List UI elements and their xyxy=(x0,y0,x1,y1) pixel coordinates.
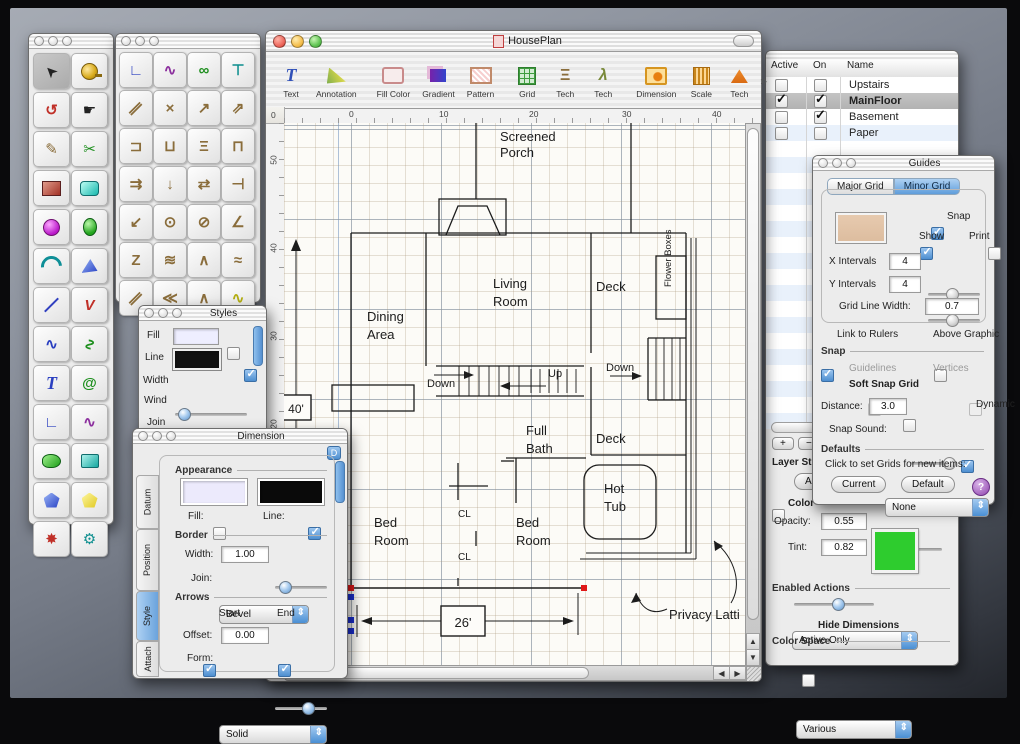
tech-tool-6[interactable]: × xyxy=(153,90,187,126)
palette-collapse-icon[interactable] xyxy=(135,36,145,46)
dimension-title: Dimension xyxy=(180,431,342,442)
styles-width-slider[interactable] xyxy=(175,413,247,416)
horizontal-scrollbar[interactable]: ◀ ▶ xyxy=(284,665,747,681)
tech-tool-5[interactable]: ∥ xyxy=(119,90,153,126)
dimension-width-slider[interactable] xyxy=(275,586,327,589)
tech-tool-12-icon: ⊓ xyxy=(232,139,244,154)
guides-title-bar[interactable]: Guides xyxy=(813,156,994,171)
bezier-tool[interactable]: ∿ xyxy=(71,404,108,440)
plus-icon: + xyxy=(780,438,786,449)
appearance-label: Appearance xyxy=(175,465,232,476)
dimension-scrollbar-thumb[interactable] xyxy=(335,461,345,503)
label-flower-boxes: Flower Boxes xyxy=(663,229,674,287)
defaults-hint: Click to set Grids for new items: xyxy=(825,459,966,470)
tech-tool-17-icon: ↙ xyxy=(130,215,143,230)
horizontal-ruler[interactable]: 0 10 20 30 40 xyxy=(284,107,761,124)
circle-icon xyxy=(43,219,60,236)
current-button-label: Current xyxy=(842,479,875,490)
rounded-rectangle-tool[interactable] xyxy=(71,170,108,206)
layers-col-on[interactable]: On xyxy=(813,60,847,77)
dimension-join-label: Join: xyxy=(191,573,212,584)
styles-wind-label: Wind xyxy=(144,395,167,406)
layer-row-paper[interactable]: Paper xyxy=(766,125,958,141)
tint-field[interactable]: 0.82 xyxy=(821,539,867,556)
tab-position[interactable]: Position xyxy=(136,529,159,591)
toolbar-toggle-button[interactable] xyxy=(733,35,754,47)
tape-measure-icon xyxy=(81,63,98,80)
link-to-rulers-label: Link to Rulers xyxy=(837,329,898,340)
palette-close-icon[interactable] xyxy=(121,36,131,46)
x-intervals-label: X Intervals xyxy=(829,256,876,267)
tint-value: 0.82 xyxy=(834,542,853,553)
tape-measure-tool[interactable] xyxy=(71,53,108,89)
layer-row-upstairs[interactable]: Upstairs xyxy=(766,77,958,93)
border-label: Border xyxy=(175,530,208,541)
appearance-section: Appearance xyxy=(175,465,327,476)
snap-sound-label: Snap Sound: xyxy=(829,424,887,435)
offset-field[interactable]: 0.00 xyxy=(221,627,269,644)
print-checkbox[interactable] xyxy=(988,247,1001,260)
rectangle-tool[interactable] xyxy=(33,170,70,206)
label-hot-tub-2: Tub xyxy=(604,499,626,514)
palette-zoom-icon[interactable] xyxy=(166,431,176,441)
rectangle-icon xyxy=(42,181,61,196)
label-closet-2: CL xyxy=(458,552,471,563)
print-label: Print xyxy=(969,231,990,242)
tech-tool-18-icon: ⊙ xyxy=(164,215,177,230)
label-deck-lower: Deck xyxy=(596,431,626,446)
toolbar-label: Tech xyxy=(556,89,574,99)
scroll-down-icon[interactable]: ▼ xyxy=(746,649,760,666)
drawing-tools-title-bar[interactable] xyxy=(29,34,113,49)
tech-tool-14-icon: ↓ xyxy=(166,177,174,192)
y-intervals-slider[interactable] xyxy=(928,319,980,322)
grid-color-swatch[interactable] xyxy=(835,212,887,244)
dimension-width-label: Width: xyxy=(185,549,213,560)
above-graphic-label: Above Graphic xyxy=(933,329,999,340)
palette-zoom-icon[interactable] xyxy=(846,158,856,168)
label-down-right: Down xyxy=(606,362,634,374)
dimension-icon xyxy=(645,67,667,85)
resize-grip[interactable] xyxy=(747,667,761,681)
toolbar-label: Scale xyxy=(691,89,712,99)
ruler-tick-label: 40 xyxy=(269,243,279,252)
palette-collapse-icon[interactable] xyxy=(158,308,168,318)
y-intervals-value: 4 xyxy=(902,279,908,290)
layer-active-checkbox[interactable] xyxy=(775,111,788,124)
zoom-button[interactable] xyxy=(309,35,322,48)
pentagon-icon xyxy=(44,493,60,508)
distance-value: 3.0 xyxy=(881,401,895,412)
closed-curve-icon xyxy=(42,454,61,468)
palette-close-icon[interactable] xyxy=(818,158,828,168)
color-space-label: Color Space xyxy=(772,636,830,647)
layer-on-checkbox[interactable] xyxy=(814,111,827,124)
x-intervals-field[interactable]: 4 xyxy=(889,253,921,270)
y-intervals-field[interactable]: 4 xyxy=(889,276,921,293)
tech-tool-19[interactable]: ⊘ xyxy=(187,204,221,240)
tech-tool-6-icon: × xyxy=(166,101,175,116)
line-tool[interactable] xyxy=(33,287,70,323)
tech-tool-4-icon: ⊤ xyxy=(231,63,244,78)
styles-width-label: Width xyxy=(143,375,169,386)
color-space-dropdown[interactable]: Various xyxy=(796,720,912,739)
offset-value: 0.00 xyxy=(235,630,254,641)
palette-collapse-icon[interactable] xyxy=(48,36,58,46)
opacity-value: 0.55 xyxy=(834,516,853,527)
tech-icon: Ξ xyxy=(560,67,570,85)
question-icon: ? xyxy=(978,482,984,493)
closed-path-tool[interactable] xyxy=(71,443,108,479)
palette-collapse-icon[interactable] xyxy=(832,158,842,168)
toolbar-item-text[interactable]: T Text xyxy=(272,54,310,108)
toolbar-label: Tech xyxy=(594,89,612,99)
ruler-tick-label: 30 xyxy=(622,109,631,119)
show-label: Show xyxy=(919,231,944,242)
floor-plan: Screened Porch Living Room Deck Dining A… xyxy=(284,123,747,667)
styles-line-swatch[interactable] xyxy=(173,349,221,370)
pentagon-tool[interactable] xyxy=(33,482,70,518)
tech-tool-13[interactable]: ⇉ xyxy=(119,166,153,202)
tech-tool-1-icon: ∟ xyxy=(129,63,144,78)
soft-snap-label: Soft Snap Grid xyxy=(849,379,919,390)
ruler-tick-label: 50 xyxy=(269,155,279,164)
polygon-tool[interactable] xyxy=(71,482,108,518)
layer-name: Paper xyxy=(849,127,878,139)
snap-sound-dropdown[interactable]: None xyxy=(885,498,989,517)
vertical-scrollbar[interactable]: ▲ ▼ xyxy=(745,123,761,667)
tab-attach-label: Attach xyxy=(143,646,153,672)
tech-tool-23[interactable]: ∧ xyxy=(187,242,221,278)
gear-tool[interactable]: ⚙ xyxy=(71,521,108,557)
tab-style[interactable]: Style xyxy=(136,591,159,641)
tech-tool-22[interactable]: ≋ xyxy=(153,242,187,278)
ruler-tick-label: 10 xyxy=(439,109,448,119)
label-closet-1: CL xyxy=(458,509,471,520)
scroll-right-icon[interactable]: ▶ xyxy=(729,666,746,680)
tint-slider[interactable] xyxy=(794,603,874,606)
tech-tool-11-icon: Ξ xyxy=(199,139,209,154)
tab-datum[interactable]: Datum xyxy=(136,475,159,529)
tint-color-swatch[interactable] xyxy=(872,529,918,573)
polygon-icon xyxy=(82,493,98,508)
form-label: Form: xyxy=(187,653,213,664)
tech-tool-20[interactable]: ∠ xyxy=(221,204,255,240)
drawing-canvas[interactable]: Screened Porch Living Room Deck Dining A… xyxy=(284,123,747,667)
toolbar-item-tech-3[interactable]: Tech xyxy=(720,54,758,108)
toolbar-label: Annotation xyxy=(316,89,357,99)
tech-tool-24-icon: ≈ xyxy=(234,253,242,268)
label-privacy-lattice: Privacy Latti xyxy=(669,607,740,622)
tech-tool-22-icon: ≋ xyxy=(164,253,177,268)
add-layer-button[interactable]: + xyxy=(772,437,794,450)
grid-icon xyxy=(518,67,536,85)
toolbar-item-tech-1[interactable]: Ξ Tech xyxy=(546,54,584,108)
corner-path-tool[interactable]: ∟ xyxy=(33,404,70,440)
toolbar-label: Gradient xyxy=(422,89,455,99)
defaults-label: Defaults xyxy=(821,444,860,455)
grid-line-width-field[interactable]: 0.7 xyxy=(925,298,979,315)
offset-slider[interactable] xyxy=(275,707,327,710)
window-title-text: HousePlan xyxy=(508,35,562,47)
label-up: Up xyxy=(548,368,562,380)
styles-fill-swatch[interactable] xyxy=(173,328,219,345)
layer-active-checkbox[interactable] xyxy=(775,95,788,108)
arrow-start-checkbox[interactable] xyxy=(203,664,216,677)
tint-label: Tint: xyxy=(788,542,807,553)
tech-tools-palette: ∟ ∿ ∞ ⊤ ∥ × ↗ ⇗ ⊐ ⊔ Ξ ⊓ ⇉ ↓ ⇄ ⊣ ↙ ⊙ ⊘ ∠ … xyxy=(115,33,261,303)
tech-tool-9[interactable]: ⊐ xyxy=(119,128,153,164)
dimension-fill-swatch[interactable] xyxy=(181,479,247,505)
line-icon xyxy=(44,298,59,313)
document-icon xyxy=(493,35,504,48)
styles-fill-checkbox[interactable] xyxy=(227,347,240,360)
show-checkbox[interactable] xyxy=(920,247,933,260)
rotate-tool[interactable]: ↺ xyxy=(33,92,70,128)
styles-join-label: Join xyxy=(147,417,165,428)
grid-line-width-value: 0.7 xyxy=(945,301,959,312)
scroll-up-icon[interactable]: ▲ xyxy=(746,633,760,650)
link-to-rulers-checkbox[interactable] xyxy=(821,369,834,382)
tech-tool-16[interactable]: ⊣ xyxy=(221,166,255,202)
default-button[interactable]: Default xyxy=(901,476,955,493)
tech-tool-15[interactable]: ⇄ xyxy=(187,166,221,202)
window-title: HousePlan xyxy=(327,35,728,48)
toolbar-overflow-chevron[interactable]: » xyxy=(758,74,769,88)
tech-tool-10-icon: ⊔ xyxy=(164,139,176,154)
toolbar-label: Pattern xyxy=(467,89,494,99)
tech-tool-21-icon: Z xyxy=(131,253,140,268)
guides-palette: Guides Major Grid Minor Grid Snap Show P… xyxy=(812,155,995,505)
hide-dimensions-checkbox[interactable] xyxy=(802,674,815,687)
label-screened-porch: Screened xyxy=(500,129,556,144)
tech-tool-14[interactable]: ↓ xyxy=(153,166,187,202)
palette-close-icon[interactable] xyxy=(138,431,148,441)
label-bedroom-right: Bed xyxy=(516,515,539,530)
tech-tool-8[interactable]: ⇗ xyxy=(221,90,255,126)
drawing-tools-palette: ➤ ↺ ☛ ✎ ✂ V ∿ ∿ T @ ∟ ∿ ✸ ⚙ xyxy=(28,33,114,525)
text-tool[interactable]: T xyxy=(33,365,70,401)
toolbar-item-annotation[interactable]: Annotation xyxy=(310,54,363,108)
tech-tool-12[interactable]: ⊓ xyxy=(221,128,255,164)
desktop: ➤ ↺ ☛ ✎ ✂ V ∿ ∿ T @ ∟ ∿ ✸ ⚙ xyxy=(10,8,1007,698)
tech-tool-5-icon: ∥ xyxy=(128,100,144,116)
form-dropdown[interactable]: Solid xyxy=(219,725,327,744)
soft-snap-checkbox[interactable] xyxy=(903,419,916,432)
ruler-zero: 0 xyxy=(271,110,276,120)
arrow-end-label: End xyxy=(277,608,295,619)
toolbar-label: Tech xyxy=(730,89,748,99)
tech-tool-11[interactable]: Ξ xyxy=(187,128,221,164)
palette-close-icon[interactable] xyxy=(34,36,44,46)
spiral-icon: @ xyxy=(82,376,97,391)
label-full-bath: Full xyxy=(526,423,547,438)
tech-tool-24[interactable]: ≈ xyxy=(221,242,255,278)
houseplan-title-bar[interactable]: HousePlan xyxy=(266,31,761,52)
tech-tool-4[interactable]: ⊤ xyxy=(221,52,255,88)
layer-on-checkbox[interactable] xyxy=(814,127,827,140)
styles-palette: Styles Fill Line Width Wind Non-Ze Join … xyxy=(138,305,267,447)
polyline-tool[interactable]: V xyxy=(71,287,108,323)
tech-tool-2-icon: ∿ xyxy=(164,63,177,78)
label-screened-porch-2: Porch xyxy=(500,145,534,160)
rounded-rectangle-icon xyxy=(80,181,99,196)
form-value: Solid xyxy=(226,729,248,740)
curve-icon: ∿ xyxy=(45,337,58,352)
current-button[interactable]: Current xyxy=(831,476,886,493)
label-full-bath-2: Bath xyxy=(526,441,553,456)
corner-path-icon: ∟ xyxy=(44,415,59,430)
toolbar-item-fill-color[interactable]: Fill Color xyxy=(371,54,417,108)
hand-icon: ☛ xyxy=(83,103,96,118)
dimension-title-bar[interactable]: Dimension xyxy=(133,429,347,444)
curve-tool[interactable]: ∿ xyxy=(33,326,70,362)
distance-label: Distance: xyxy=(821,401,863,412)
palette-collapse-icon[interactable] xyxy=(152,431,162,441)
text-icon: T xyxy=(286,65,297,86)
circle-tool[interactable] xyxy=(33,209,70,245)
ruler-tick-label: 30 xyxy=(269,331,279,340)
scissors-icon: ✂ xyxy=(83,142,96,157)
tech-tools-title-bar[interactable] xyxy=(116,34,260,49)
toolbar-label: Dimension xyxy=(636,89,676,99)
gear-icon: ⚙ xyxy=(83,532,96,547)
tab-attach[interactable]: Attach xyxy=(136,641,159,677)
layer-row-mainfloor[interactable]: MainFloor xyxy=(766,93,958,109)
help-button[interactable]: ? xyxy=(972,478,990,496)
scissors-tool[interactable]: ✂ xyxy=(71,131,108,167)
palette-close-icon[interactable] xyxy=(144,308,154,318)
ruler-origin-box[interactable]: 0 xyxy=(266,107,285,124)
bezier-icon: ∿ xyxy=(83,415,96,430)
label-living-room-2: Room xyxy=(493,294,528,309)
tech-tool-3[interactable]: ∞ xyxy=(187,52,221,88)
enabled-actions-section: Enabled Actions xyxy=(772,583,950,594)
closed-curve-tool[interactable] xyxy=(33,443,70,479)
dimension-palette: Dimension D Datum Position Style Attach … xyxy=(132,428,348,679)
tech-tool-19-icon: ⊘ xyxy=(198,215,211,230)
cursor-tool[interactable]: ➤ xyxy=(33,53,70,89)
styles-line-checkbox[interactable] xyxy=(244,369,257,382)
x-intervals-slider[interactable] xyxy=(928,293,980,296)
snap-section-label: Snap xyxy=(821,346,845,357)
styles-scrollbar-thumb[interactable] xyxy=(253,326,263,366)
label-bedroom-right-2: Room xyxy=(516,533,551,548)
vertices-label: Vertices xyxy=(933,363,969,374)
tech-tool-9-icon: ⊐ xyxy=(130,139,143,154)
toolbar-item-tech-2[interactable]: λ Tech xyxy=(584,54,622,108)
y-intervals-label: Y Intervals xyxy=(829,279,876,290)
tech-tool-8-icon: ⇗ xyxy=(232,101,245,116)
dimension-line-label: Line: xyxy=(263,511,285,522)
tech-icon xyxy=(731,68,748,83)
tech-tool-1[interactable]: ∟ xyxy=(119,52,153,88)
toolbar-item-pattern[interactable]: Pattern xyxy=(461,54,500,108)
vertical-scrollbar-thumb[interactable] xyxy=(747,128,759,620)
border-section: Border xyxy=(175,530,327,541)
spiral-tool[interactable]: @ xyxy=(71,365,108,401)
label-dining-area-2: Area xyxy=(367,327,395,342)
layer-name: Basement xyxy=(849,111,899,123)
ruler-tick-label: 0 xyxy=(349,109,354,119)
annotation-icon xyxy=(327,68,346,84)
layer-name: MainFloor xyxy=(849,95,902,107)
star-icon: ✸ xyxy=(45,532,58,547)
label-down-center: Down xyxy=(427,378,455,390)
styles-title-bar[interactable]: Styles xyxy=(139,306,266,321)
tech-tool-15-icon: ⇄ xyxy=(198,177,211,192)
cursor-icon: ➤ xyxy=(42,61,62,81)
ruler-tick-label: 20 xyxy=(529,109,538,119)
tech-tool-25-icon: ∥ xyxy=(128,290,144,306)
toolbar-item-dimension[interactable]: Dimension xyxy=(630,54,682,108)
brush-icon: ✎ xyxy=(45,142,58,157)
palette-zoom-icon[interactable] xyxy=(149,36,159,46)
guides-title: Guides xyxy=(860,158,989,169)
arrow-end-checkbox[interactable] xyxy=(278,664,291,677)
tech-tool-27-icon: ∧ xyxy=(199,291,210,306)
layer-active-checkbox[interactable] xyxy=(775,127,788,140)
tech-tool-18[interactable]: ⊙ xyxy=(153,204,187,240)
tech-tool-16-icon: ⊣ xyxy=(231,177,244,192)
layers-col-active[interactable]: Active xyxy=(766,60,813,77)
label-dining-area: Dining xyxy=(367,309,404,324)
layers-col-name[interactable]: Name xyxy=(847,60,874,77)
tech-tool-7[interactable]: ↗ xyxy=(187,90,221,126)
star-tool[interactable]: ✸ xyxy=(33,521,70,557)
opacity-field[interactable]: 0.55 xyxy=(821,513,867,530)
hand-tool[interactable]: ☛ xyxy=(71,92,108,128)
palette-zoom-icon[interactable] xyxy=(172,308,182,318)
label-dimension-26ft: 26' xyxy=(455,615,472,630)
tech-tool-23-icon: ∧ xyxy=(199,253,210,268)
brush-tool[interactable]: ✎ xyxy=(33,131,70,167)
tech-tool-10[interactable]: ⊔ xyxy=(153,128,187,164)
default-button-label: Default xyxy=(912,479,944,490)
toolbar-item-grid[interactable]: Grid xyxy=(508,54,546,108)
tech-tool-2[interactable]: ∿ xyxy=(153,52,187,88)
toolbar-label: Fill Color xyxy=(377,89,411,99)
freehand-tool[interactable]: ∿ xyxy=(71,326,108,362)
dimension-width-field[interactable]: 1.00 xyxy=(221,546,269,563)
tech-tool-21[interactable]: Z xyxy=(119,242,153,278)
ruler-tick-label: 40 xyxy=(712,109,721,119)
color-label: Color xyxy=(788,498,814,509)
arc-tool[interactable] xyxy=(33,248,70,284)
tech-tool-26-icon: ≪ xyxy=(162,291,178,306)
label-hot-tub: Hot xyxy=(604,481,625,496)
layer-row-basement[interactable]: Basement xyxy=(766,109,958,125)
wedge-tool[interactable] xyxy=(71,248,108,284)
styles-fill-label: Fill xyxy=(147,330,160,341)
tech-tool-17[interactable]: ↙ xyxy=(119,204,153,240)
toolbar-item-gradient[interactable]: Gradient xyxy=(416,54,461,108)
toolbar-label: Grid xyxy=(519,89,535,99)
hide-dimensions-label: Hide Dimensions xyxy=(818,620,899,631)
toolbar-item-scale[interactable]: Scale xyxy=(682,54,720,108)
minimize-button[interactable] xyxy=(291,35,304,48)
tech-tool-20-icon: ∠ xyxy=(231,215,244,230)
label-dimension-40ft: 40' xyxy=(288,402,304,416)
palette-zoom-icon[interactable] xyxy=(62,36,72,46)
scroll-left-icon[interactable]: ◀ xyxy=(713,666,730,680)
dimension-line-swatch[interactable] xyxy=(258,479,324,505)
dynamic-label: Dynamic xyxy=(976,399,1015,410)
ellipse-tool[interactable] xyxy=(71,209,108,245)
label-deck-upper: Deck xyxy=(596,279,626,294)
distance-field[interactable]: 3.0 xyxy=(869,398,907,415)
close-button[interactable] xyxy=(273,35,286,48)
